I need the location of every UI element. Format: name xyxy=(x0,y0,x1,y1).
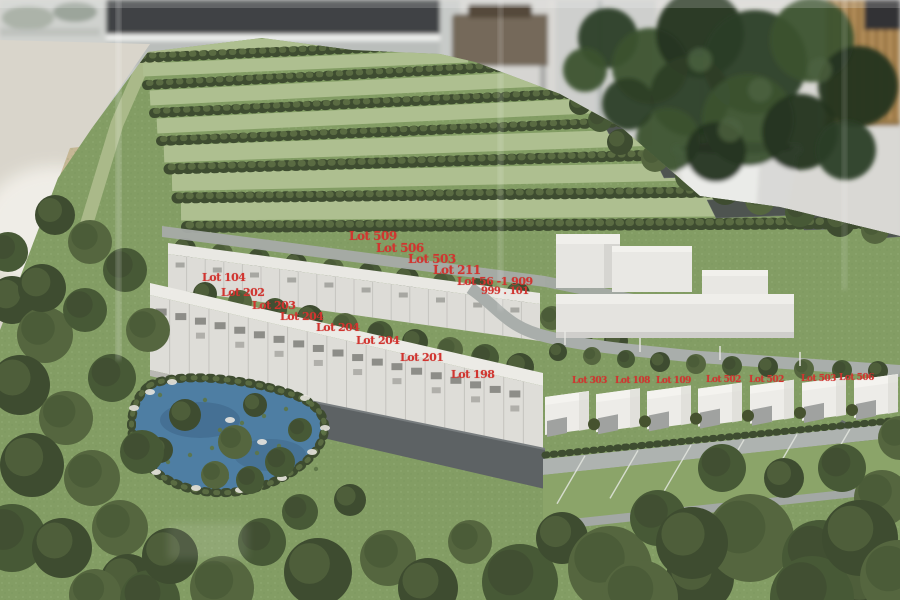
foliage-blob xyxy=(563,48,607,92)
tree-highlight xyxy=(71,223,97,249)
window xyxy=(274,336,285,343)
lily-pad xyxy=(158,393,162,397)
window xyxy=(313,345,324,352)
tree-highlight xyxy=(336,486,355,505)
tree-highlight xyxy=(203,463,220,480)
foliage-highlight xyxy=(688,48,712,72)
tree-highlight xyxy=(289,543,330,584)
rock xyxy=(129,405,139,411)
tree-highlight xyxy=(451,523,477,549)
window xyxy=(175,313,186,320)
window xyxy=(234,327,245,334)
glass-glare xyxy=(168,523,248,559)
scene-canvas xyxy=(0,0,900,600)
hedge xyxy=(794,407,806,419)
rock xyxy=(307,449,317,455)
window xyxy=(436,297,445,302)
lily-pad xyxy=(284,407,288,411)
window xyxy=(362,287,371,292)
hedge xyxy=(690,413,702,425)
tree-highlight xyxy=(828,506,874,552)
window xyxy=(392,378,401,384)
tree-highlight xyxy=(68,454,102,488)
window xyxy=(333,350,344,357)
hedge xyxy=(588,418,600,430)
tree-highlight xyxy=(760,359,772,371)
lily-pad xyxy=(203,398,207,402)
lily-pad xyxy=(255,451,259,455)
lily-pad xyxy=(240,421,244,425)
tree-highlight xyxy=(92,358,121,387)
rock xyxy=(257,439,267,445)
rock xyxy=(225,417,235,423)
tree-highlight xyxy=(22,268,51,297)
window xyxy=(372,359,383,366)
window xyxy=(235,342,244,348)
tree-highlight xyxy=(767,461,791,485)
tree-highlight xyxy=(43,395,75,427)
tree-highlight xyxy=(550,344,561,355)
window xyxy=(314,360,323,366)
tree-highlight xyxy=(195,561,233,599)
window xyxy=(213,267,222,272)
tree-highlight xyxy=(38,198,62,222)
lily-pad xyxy=(321,430,325,434)
tree-highlight xyxy=(618,351,629,362)
window xyxy=(287,277,296,282)
tree-highlight xyxy=(822,448,851,477)
rock xyxy=(167,379,177,385)
window xyxy=(509,390,520,397)
tree-highlight xyxy=(364,534,398,568)
window xyxy=(510,405,519,411)
tree-highlight xyxy=(129,311,155,337)
tree-highlight xyxy=(661,512,704,555)
tree-highlight xyxy=(245,395,259,409)
lily-pad xyxy=(314,467,318,471)
rock xyxy=(145,389,155,395)
window xyxy=(411,368,422,375)
hedge xyxy=(742,410,754,422)
glass-seam xyxy=(498,0,503,310)
tree-highlight xyxy=(488,550,534,596)
rock xyxy=(320,425,330,431)
tree-highlight xyxy=(609,131,625,147)
window xyxy=(391,363,402,370)
window xyxy=(176,262,185,267)
window xyxy=(432,387,441,393)
window xyxy=(510,307,519,312)
tree-highlight xyxy=(290,420,304,434)
window xyxy=(293,340,304,347)
tree-highlight xyxy=(221,428,241,448)
glass-seam xyxy=(842,0,847,290)
rock xyxy=(191,485,201,491)
lily-pad xyxy=(262,414,266,418)
window xyxy=(470,381,481,388)
window xyxy=(196,333,205,339)
lily-pad xyxy=(306,400,310,404)
tree-highlight xyxy=(5,438,43,476)
tree-highlight xyxy=(238,468,255,485)
tree-highlight xyxy=(96,504,130,538)
tree-highlight xyxy=(652,354,664,366)
tree-highlight xyxy=(171,401,190,420)
window xyxy=(215,322,226,329)
tree-highlight xyxy=(584,348,595,359)
foliage-highlight xyxy=(748,78,772,102)
tree-highlight xyxy=(285,497,307,519)
tree-highlight xyxy=(796,361,808,373)
lily-pad xyxy=(210,446,214,450)
tree-highlight xyxy=(870,363,882,375)
lily-pad xyxy=(218,428,222,432)
tree-highlight xyxy=(403,563,439,599)
tree-highlight xyxy=(724,358,736,370)
glass-seam xyxy=(116,0,121,360)
tree-highlight xyxy=(37,523,73,559)
tree-highlight xyxy=(542,308,556,322)
window xyxy=(324,282,333,287)
tree-highlight xyxy=(267,449,285,467)
window xyxy=(352,354,363,361)
window xyxy=(431,372,442,379)
tree-highlight xyxy=(702,448,731,477)
tree-highlight xyxy=(123,433,149,459)
window xyxy=(254,331,265,338)
window xyxy=(450,377,461,384)
foliage-highlight xyxy=(808,58,832,82)
lily-pad xyxy=(188,453,192,457)
tree-highlight xyxy=(834,362,846,374)
tree-highlight xyxy=(66,291,92,317)
hedge xyxy=(639,415,651,427)
photo-of-architecture-model: Lot 509Lot 506Lot 503Lot 211Lot 56 -1 90… xyxy=(0,0,900,600)
tree-highlight xyxy=(540,516,571,547)
window xyxy=(471,396,480,402)
window xyxy=(490,386,501,393)
foliage-highlight xyxy=(718,118,742,142)
tree-highlight xyxy=(688,356,700,368)
window xyxy=(195,318,206,325)
window xyxy=(399,292,408,297)
tree-highlight xyxy=(21,311,55,345)
window xyxy=(353,369,362,375)
window xyxy=(250,272,259,277)
window xyxy=(275,351,284,357)
hedge xyxy=(846,404,858,416)
